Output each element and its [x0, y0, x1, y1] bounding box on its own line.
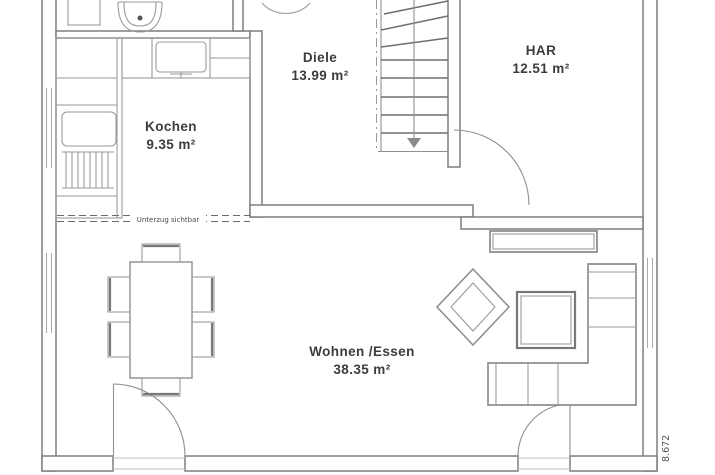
- kitchen-sink: [156, 42, 206, 72]
- dining-chair-left-1: [108, 277, 130, 312]
- kitchen-left-dividers: [56, 38, 117, 218]
- kitchen-counter-left: [56, 38, 122, 218]
- label-diele: Diele: [303, 50, 337, 65]
- wall-exterior-bottom-mid: [185, 456, 518, 471]
- corner-sofa: [488, 264, 636, 405]
- har-door-arc: [454, 130, 529, 205]
- wall-har-wohnen: [461, 217, 643, 229]
- kitchen-appliance: [62, 112, 116, 146]
- label-har-area: 12.51 m²: [512, 61, 569, 76]
- label-wohnen: Wohnen /Essen: [309, 344, 414, 359]
- dining-chair-right-2: [192, 322, 214, 357]
- wall-exterior-bottom-left: [42, 456, 113, 471]
- dining-chair-right-1: [192, 277, 214, 312]
- wall-diele-wohnen: [250, 205, 473, 217]
- wall-exterior-bottom-right: [570, 456, 657, 471]
- dining-table: [130, 262, 192, 378]
- terrace-door-right-arc: [518, 404, 570, 456]
- label-diele-area: 13.99 m²: [291, 68, 348, 83]
- wall-kitchen-diele: [250, 31, 262, 217]
- label-wohnen-area: 38.35 m²: [333, 362, 390, 377]
- label-kochen-area: 9.35 m²: [146, 137, 195, 152]
- bath-fixtures: [68, 0, 310, 32]
- dining-chair-top: [142, 244, 180, 262]
- lounge: [437, 231, 636, 405]
- wall-bath-right: [233, 0, 243, 31]
- bath-door-arc: [262, 3, 310, 14]
- dimension-right: 8.672: [661, 435, 672, 462]
- wall-exterior-right: [643, 0, 657, 471]
- threshold-right-door: [518, 458, 570, 469]
- washbasin-inner: [124, 2, 156, 26]
- label-har: HAR: [526, 43, 556, 58]
- beam-line: Unterzug sichtbar: [57, 215, 250, 224]
- radiator: [62, 152, 114, 188]
- dining-set: [108, 244, 214, 396]
- floorplan-svg: Unterzug sichtbar: [0, 0, 715, 475]
- dining-chair-bottom: [142, 378, 180, 396]
- washbasin-drain: [138, 16, 143, 21]
- dining-chair-left-2: [108, 322, 130, 357]
- kitchen-faucet: [170, 72, 192, 78]
- wall-stair-har: [448, 0, 460, 167]
- wall-bath-kitchen: [56, 31, 250, 38]
- wall-exterior-left: [42, 0, 56, 471]
- label-kochen: Kochen: [145, 119, 197, 134]
- diamond-armchair: [437, 269, 509, 345]
- beam-note: Unterzug sichtbar: [137, 216, 200, 224]
- floorplan-image: Unterzug sichtbar: [0, 0, 715, 475]
- stair-start-marker: [407, 138, 421, 148]
- coffee-table: [517, 292, 575, 348]
- staircase: [377, 0, 449, 152]
- bath-fixture: [68, 0, 100, 25]
- sideboard: [490, 231, 597, 252]
- threshold-left-door: [113, 458, 185, 469]
